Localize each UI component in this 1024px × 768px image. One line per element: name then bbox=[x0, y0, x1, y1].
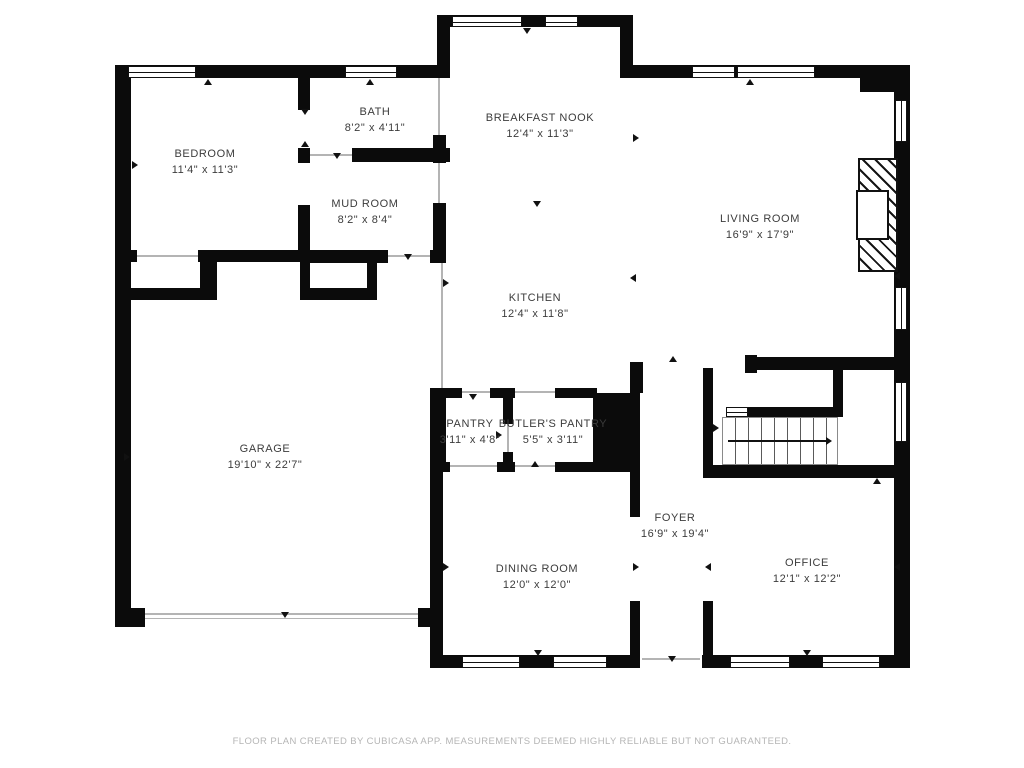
window-symbol bbox=[726, 407, 748, 417]
wall-segment bbox=[298, 205, 310, 255]
wall-segment bbox=[703, 368, 713, 468]
door-arrow-icon bbox=[443, 279, 449, 287]
window-symbol bbox=[452, 16, 522, 27]
wall-segment bbox=[298, 148, 310, 163]
wall-segment bbox=[497, 462, 515, 472]
opening-line bbox=[310, 154, 352, 156]
room-dimensions: 12'4" x 11'3" bbox=[486, 127, 594, 143]
wall-segment bbox=[300, 250, 377, 263]
room-dimensions: 19'10" x 22'7" bbox=[228, 458, 303, 474]
door-arrow-icon bbox=[533, 201, 541, 207]
door-arrow-icon bbox=[132, 161, 138, 169]
room-label-bath: BATH 8'2" x 4'11" bbox=[345, 105, 406, 137]
door-arrow-icon bbox=[366, 79, 374, 85]
window-symbol bbox=[730, 656, 790, 668]
window-symbol bbox=[895, 287, 907, 330]
door-arrow-icon bbox=[531, 461, 539, 467]
room-label-butlers-pantry: BUTLER'S PANTRY 5'5" x 3'11" bbox=[499, 417, 608, 449]
opening-line bbox=[450, 465, 497, 467]
door-arrow-icon bbox=[204, 79, 212, 85]
wall-segment bbox=[630, 601, 640, 668]
room-name: BUTLER'S PANTRY bbox=[499, 417, 608, 433]
door-arrow-icon bbox=[630, 274, 636, 282]
window-symbol bbox=[895, 100, 907, 142]
door-arrow-icon bbox=[894, 563, 900, 571]
stair-arrow-head-icon bbox=[826, 437, 832, 445]
door-arrow-icon bbox=[746, 79, 754, 85]
garage-door-line bbox=[145, 618, 418, 619]
window-symbol bbox=[895, 382, 907, 442]
room-dimensions: 8'2" x 8'4" bbox=[331, 213, 398, 229]
room-label-mud-room: MUD ROOM 8'2" x 8'4" bbox=[331, 197, 398, 229]
door-arrow-icon bbox=[301, 141, 309, 147]
opening-line bbox=[438, 163, 440, 203]
room-dimensions: 16'9" x 17'9" bbox=[720, 228, 800, 244]
wall-segment bbox=[555, 388, 597, 398]
window-symbol bbox=[553, 656, 607, 668]
room-name: DINING ROOM bbox=[496, 562, 578, 578]
wall-segment bbox=[115, 65, 131, 620]
door-arrow-icon bbox=[803, 650, 811, 656]
window-symbol bbox=[462, 656, 520, 668]
wall-segment bbox=[620, 15, 633, 78]
wall-segment bbox=[300, 288, 377, 300]
room-label-foyer: FOYER 16'9" x 19'4" bbox=[641, 511, 709, 543]
wall-segment bbox=[430, 388, 462, 398]
opening-line bbox=[462, 391, 490, 393]
opening-line bbox=[515, 391, 555, 393]
door-arrow-icon bbox=[281, 612, 289, 618]
window-symbol bbox=[545, 16, 578, 27]
wall-segment bbox=[745, 357, 910, 370]
window-symbol bbox=[692, 66, 735, 78]
door-arrow-icon bbox=[668, 656, 676, 662]
wall-segment bbox=[433, 135, 446, 163]
room-label-office: OFFICE 12'1" x 12'2" bbox=[773, 556, 841, 588]
room-dimensions: 16'9" x 19'4" bbox=[641, 527, 709, 543]
room-label-dining-room: DINING ROOM 12'0" x 12'0" bbox=[496, 562, 578, 594]
wall-segment bbox=[748, 407, 838, 417]
door-arrow-icon bbox=[469, 394, 477, 400]
door-arrow-icon bbox=[443, 563, 449, 571]
window-symbol bbox=[737, 66, 815, 78]
door-arrow-icon bbox=[404, 254, 412, 260]
room-dimensions: 11'4" x 11'3" bbox=[172, 163, 239, 179]
door-arrow-icon bbox=[873, 478, 881, 484]
room-name: OFFICE bbox=[773, 556, 841, 572]
wall-segment bbox=[115, 250, 137, 262]
floor-plan: BEDROOM 11'4" x 11'3" BATH 8'2" x 4'11" … bbox=[0, 0, 1024, 768]
room-dimensions: 5'5" x 3'11" bbox=[499, 433, 608, 449]
stair-direction-arrow bbox=[728, 440, 828, 442]
room-label-bedroom: BEDROOM 11'4" x 11'3" bbox=[172, 147, 239, 179]
room-name: BREAKFAST NOOK bbox=[486, 111, 594, 127]
door-arrow-icon bbox=[301, 109, 309, 115]
wall-segment bbox=[298, 70, 310, 110]
door-arrow-icon bbox=[669, 356, 677, 362]
room-label-breakfast-nook: BREAKFAST NOOK 12'4" x 11'3" bbox=[486, 111, 594, 143]
wall-segment bbox=[115, 608, 145, 627]
wall-segment bbox=[490, 388, 515, 398]
room-name: LIVING ROOM bbox=[720, 212, 800, 228]
room-name: FOYER bbox=[641, 511, 709, 527]
opening-line bbox=[438, 78, 440, 135]
wall-segment bbox=[430, 470, 443, 668]
wall-segment bbox=[430, 250, 443, 263]
door-arrow-icon bbox=[633, 563, 639, 571]
wall-segment bbox=[630, 362, 643, 393]
wall-segment bbox=[367, 263, 377, 288]
door-arrow-icon bbox=[633, 134, 639, 142]
door-arrow-icon bbox=[705, 563, 711, 571]
room-dimensions: 12'0" x 12'0" bbox=[496, 578, 578, 594]
fireplace-firebox bbox=[856, 190, 889, 240]
footer-disclaimer: FLOOR PLAN CREATED BY CUBICASA APP. MEAS… bbox=[0, 736, 1024, 747]
wall-segment bbox=[630, 472, 640, 517]
wall-segment bbox=[377, 250, 388, 263]
door-arrow-icon bbox=[124, 453, 130, 461]
room-dimensions: 12'4" x 11'8" bbox=[501, 307, 568, 323]
window-symbol bbox=[345, 66, 397, 78]
wall-segment bbox=[703, 465, 910, 478]
room-label-living-room: LIVING ROOM 16'9" x 17'9" bbox=[720, 212, 800, 244]
opening-line bbox=[137, 255, 198, 257]
wall-segment bbox=[300, 263, 310, 288]
room-name: BEDROOM bbox=[172, 147, 239, 163]
wall-segment bbox=[115, 288, 217, 300]
room-dimensions: 12'1" x 12'2" bbox=[773, 572, 841, 588]
room-label-garage: GARAGE 19'10" x 22'7" bbox=[228, 442, 303, 474]
door-arrow-icon bbox=[333, 153, 341, 159]
room-name: PANTRY bbox=[440, 417, 501, 433]
room-name: KITCHEN bbox=[501, 291, 568, 307]
window-symbol bbox=[822, 656, 880, 668]
window-symbol bbox=[128, 66, 196, 78]
wall-segment bbox=[703, 601, 713, 668]
door-arrow-icon bbox=[894, 272, 900, 280]
door-arrow-icon bbox=[713, 424, 719, 432]
door-arrow-icon bbox=[534, 650, 542, 656]
room-label-kitchen: KITCHEN 12'4" x 11'8" bbox=[501, 291, 568, 323]
room-dimensions: 8'2" x 4'11" bbox=[345, 121, 406, 137]
room-name: GARAGE bbox=[228, 442, 303, 458]
wall-segment bbox=[198, 250, 313, 262]
room-dimensions: 3'11" x 4'8" bbox=[440, 433, 501, 449]
room-label-pantry: PANTRY 3'11" x 4'8" bbox=[440, 417, 501, 449]
room-name: BATH bbox=[345, 105, 406, 121]
door-arrow-icon bbox=[523, 28, 531, 34]
room-name: MUD ROOM bbox=[331, 197, 398, 213]
